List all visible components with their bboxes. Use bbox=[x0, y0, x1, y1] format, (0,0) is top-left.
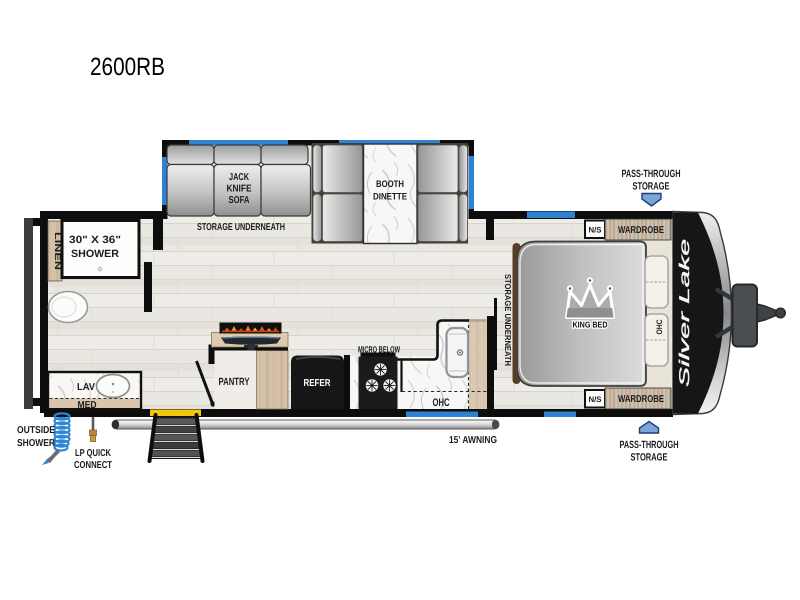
svg-text:N/S: N/S bbox=[589, 395, 603, 404]
svg-text:STORAGE: STORAGE bbox=[631, 452, 668, 464]
svg-text:N/S: N/S bbox=[589, 226, 603, 235]
svg-text:KING BED: KING BED bbox=[573, 320, 608, 330]
svg-text:JACK: JACK bbox=[229, 172, 250, 183]
svg-text:OHC: OHC bbox=[655, 319, 664, 334]
svg-text:MICRO BELOW: MICRO BELOW bbox=[358, 345, 400, 355]
svg-text:OHC: OHC bbox=[433, 397, 450, 409]
svg-text:WARDROBE: WARDROBE bbox=[618, 225, 664, 236]
svg-text:WARDROBE: WARDROBE bbox=[618, 394, 664, 405]
svg-text:15' AWNING: 15' AWNING bbox=[449, 435, 497, 446]
svg-text:PASS-THROUGH: PASS-THROUGH bbox=[622, 168, 681, 180]
svg-text:CONNECT: CONNECT bbox=[74, 460, 112, 471]
svg-text:STORAGE UNDERNEATH: STORAGE UNDERNEATH bbox=[503, 274, 513, 366]
svg-text:STORAGE: STORAGE bbox=[633, 181, 670, 193]
svg-text:2600RB: 2600RB bbox=[90, 53, 165, 81]
svg-text:REFER: REFER bbox=[304, 378, 332, 389]
svg-text:PASS-THROUGH: PASS-THROUGH bbox=[620, 439, 679, 451]
svg-text:30" X 36": 30" X 36" bbox=[69, 234, 121, 246]
svg-text:SHOWER: SHOWER bbox=[17, 438, 56, 449]
svg-text:LP QUICK: LP QUICK bbox=[75, 448, 112, 459]
svg-text:MED: MED bbox=[78, 400, 97, 411]
svg-text:BOOTH: BOOTH bbox=[376, 179, 404, 190]
svg-text:STORAGE UNDERNEATH: STORAGE UNDERNEATH bbox=[197, 222, 285, 233]
svg-text:PANTRY: PANTRY bbox=[219, 376, 250, 388]
svg-text:DINETTE: DINETTE bbox=[373, 192, 407, 203]
svg-text:Silver Lake: Silver Lake bbox=[676, 239, 692, 387]
svg-text:SOFA: SOFA bbox=[229, 195, 250, 206]
svg-text:LAV: LAV bbox=[77, 382, 95, 393]
svg-text:KNIFE: KNIFE bbox=[227, 184, 252, 195]
svg-text:SHOWER: SHOWER bbox=[71, 248, 119, 260]
svg-text:OUTSIDE: OUTSIDE bbox=[17, 425, 55, 436]
